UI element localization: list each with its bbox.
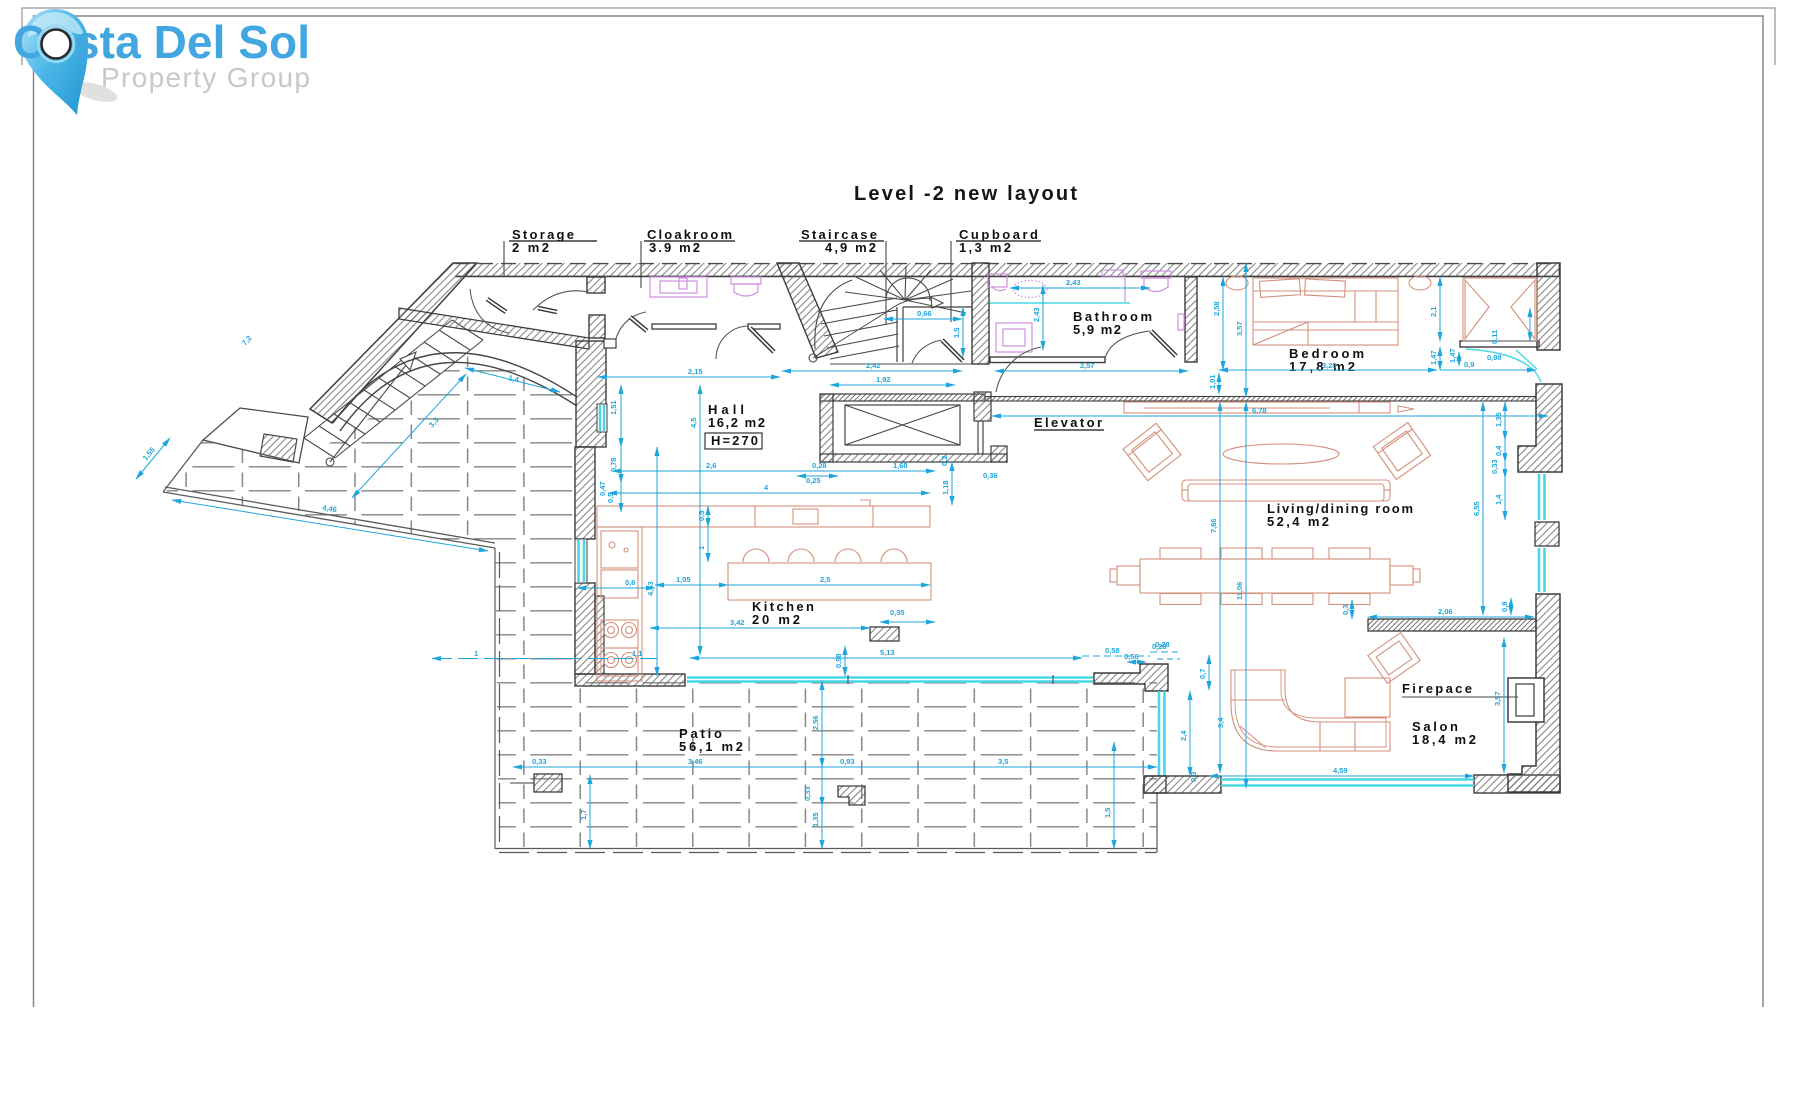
svg-text:Property Group: Property Group bbox=[101, 62, 310, 93]
svg-text:1: 1 bbox=[474, 649, 478, 658]
svg-text:0,78: 0,78 bbox=[609, 457, 618, 472]
svg-text:1,47: 1,47 bbox=[1429, 350, 1438, 365]
svg-text:sta Del Sol: sta Del Sol bbox=[74, 16, 310, 68]
svg-text:0,56: 0,56 bbox=[1124, 652, 1139, 661]
svg-text:4,63: 4,63 bbox=[646, 581, 655, 596]
svg-text:0,28: 0,28 bbox=[812, 461, 827, 470]
svg-text:1,47: 1,47 bbox=[1448, 348, 1457, 363]
svg-text:0,9: 0,9 bbox=[1464, 360, 1474, 369]
svg-text:1,35: 1,35 bbox=[1494, 412, 1503, 427]
svg-text:0,2: 0,2 bbox=[940, 456, 949, 466]
svg-text:1,92: 1,92 bbox=[876, 375, 891, 384]
svg-text:1: 1 bbox=[697, 546, 706, 550]
svg-text:1,35: 1,35 bbox=[811, 812, 820, 827]
svg-text:2,15: 2,15 bbox=[688, 367, 703, 376]
svg-text:4,5: 4,5 bbox=[689, 418, 698, 428]
svg-text:0,25: 0,25 bbox=[806, 476, 821, 485]
svg-text:3,57: 3,57 bbox=[1493, 691, 1502, 706]
svg-text:0,93: 0,93 bbox=[840, 757, 855, 766]
svg-text:6,78: 6,78 bbox=[1252, 406, 1267, 415]
svg-text:0,5: 0,5 bbox=[697, 511, 706, 521]
svg-text:1,68: 1,68 bbox=[893, 461, 908, 470]
svg-text:2,4: 2,4 bbox=[1179, 730, 1188, 741]
svg-text:Firepace: Firepace bbox=[1402, 681, 1472, 696]
svg-text:1,4: 1,4 bbox=[1494, 494, 1503, 505]
svg-text:2 m2: 2 m2 bbox=[512, 240, 549, 255]
svg-text:2,43: 2,43 bbox=[1066, 278, 1081, 287]
svg-text:1,05: 1,05 bbox=[676, 575, 691, 584]
svg-text:11,06: 11,06 bbox=[1235, 582, 1244, 600]
svg-text:2,58: 2,58 bbox=[1212, 301, 1221, 316]
svg-text:5,9 m2: 5,9 m2 bbox=[1073, 322, 1121, 337]
svg-text:2,06: 2,06 bbox=[1438, 607, 1453, 616]
svg-text:7,66: 7,66 bbox=[1209, 518, 1218, 533]
svg-text:0,3: 0,3 bbox=[1341, 605, 1350, 615]
svg-text:1,01: 1,01 bbox=[1208, 374, 1217, 389]
svg-text:3,28: 3,28 bbox=[1322, 361, 1337, 370]
svg-text:3,5: 3,5 bbox=[998, 757, 1008, 766]
svg-text:3,46: 3,46 bbox=[688, 757, 703, 766]
svg-text:1,51: 1,51 bbox=[609, 400, 618, 415]
svg-text:0,98: 0,98 bbox=[1487, 353, 1502, 362]
svg-text:4,59: 4,59 bbox=[1333, 766, 1348, 775]
svg-text:Level -2 new layout: Level -2 new layout bbox=[854, 183, 1079, 205]
svg-text:0,4: 0,4 bbox=[1494, 445, 1503, 456]
svg-text:0,11: 0,11 bbox=[1490, 330, 1499, 344]
svg-text:0,33: 0,33 bbox=[532, 757, 547, 766]
svg-text:0,35: 0,35 bbox=[890, 608, 905, 617]
svg-text:0,66: 0,66 bbox=[917, 309, 932, 318]
svg-text:2,56: 2,56 bbox=[811, 715, 820, 730]
svg-text:2,42: 2,42 bbox=[866, 361, 881, 370]
svg-text:2,57: 2,57 bbox=[1080, 361, 1095, 370]
svg-text:0,58: 0,58 bbox=[1105, 646, 1120, 655]
svg-text:6,55: 6,55 bbox=[1472, 501, 1481, 516]
svg-text:0,6: 0,6 bbox=[625, 578, 635, 587]
svg-text:3,57: 3,57 bbox=[1235, 321, 1244, 336]
svg-text:1,5: 1,5 bbox=[952, 328, 961, 338]
svg-text:2,6: 2,6 bbox=[706, 461, 716, 470]
svg-text:H=270: H=270 bbox=[711, 433, 758, 448]
svg-text:1,18: 1,18 bbox=[941, 480, 950, 495]
svg-text:2,5: 2,5 bbox=[820, 575, 830, 584]
svg-text:0,33: 0,33 bbox=[803, 786, 812, 801]
svg-text:0,7: 0,7 bbox=[1198, 669, 1207, 679]
svg-text:0,3: 0,3 bbox=[1189, 772, 1198, 782]
svg-text:1,7: 1,7 bbox=[579, 810, 588, 820]
svg-text:0,9: 0,9 bbox=[1500, 602, 1509, 612]
svg-text:1,5: 1,5 bbox=[1103, 808, 1112, 818]
svg-text:5,13: 5,13 bbox=[880, 648, 895, 657]
svg-text:0,36: 0,36 bbox=[983, 471, 998, 480]
svg-text:2,1: 2,1 bbox=[1429, 307, 1438, 317]
svg-text:2,43: 2,43 bbox=[1032, 307, 1041, 322]
svg-text:1,1: 1,1 bbox=[632, 649, 642, 658]
svg-text:3,4: 3,4 bbox=[1216, 717, 1225, 728]
svg-text:0,5: 0,5 bbox=[606, 493, 615, 503]
svg-text:0,28: 0,28 bbox=[1155, 640, 1170, 649]
svg-text:0,33: 0,33 bbox=[1490, 459, 1499, 474]
svg-text:0,98: 0,98 bbox=[834, 653, 843, 668]
svg-text:3,42: 3,42 bbox=[730, 618, 745, 627]
